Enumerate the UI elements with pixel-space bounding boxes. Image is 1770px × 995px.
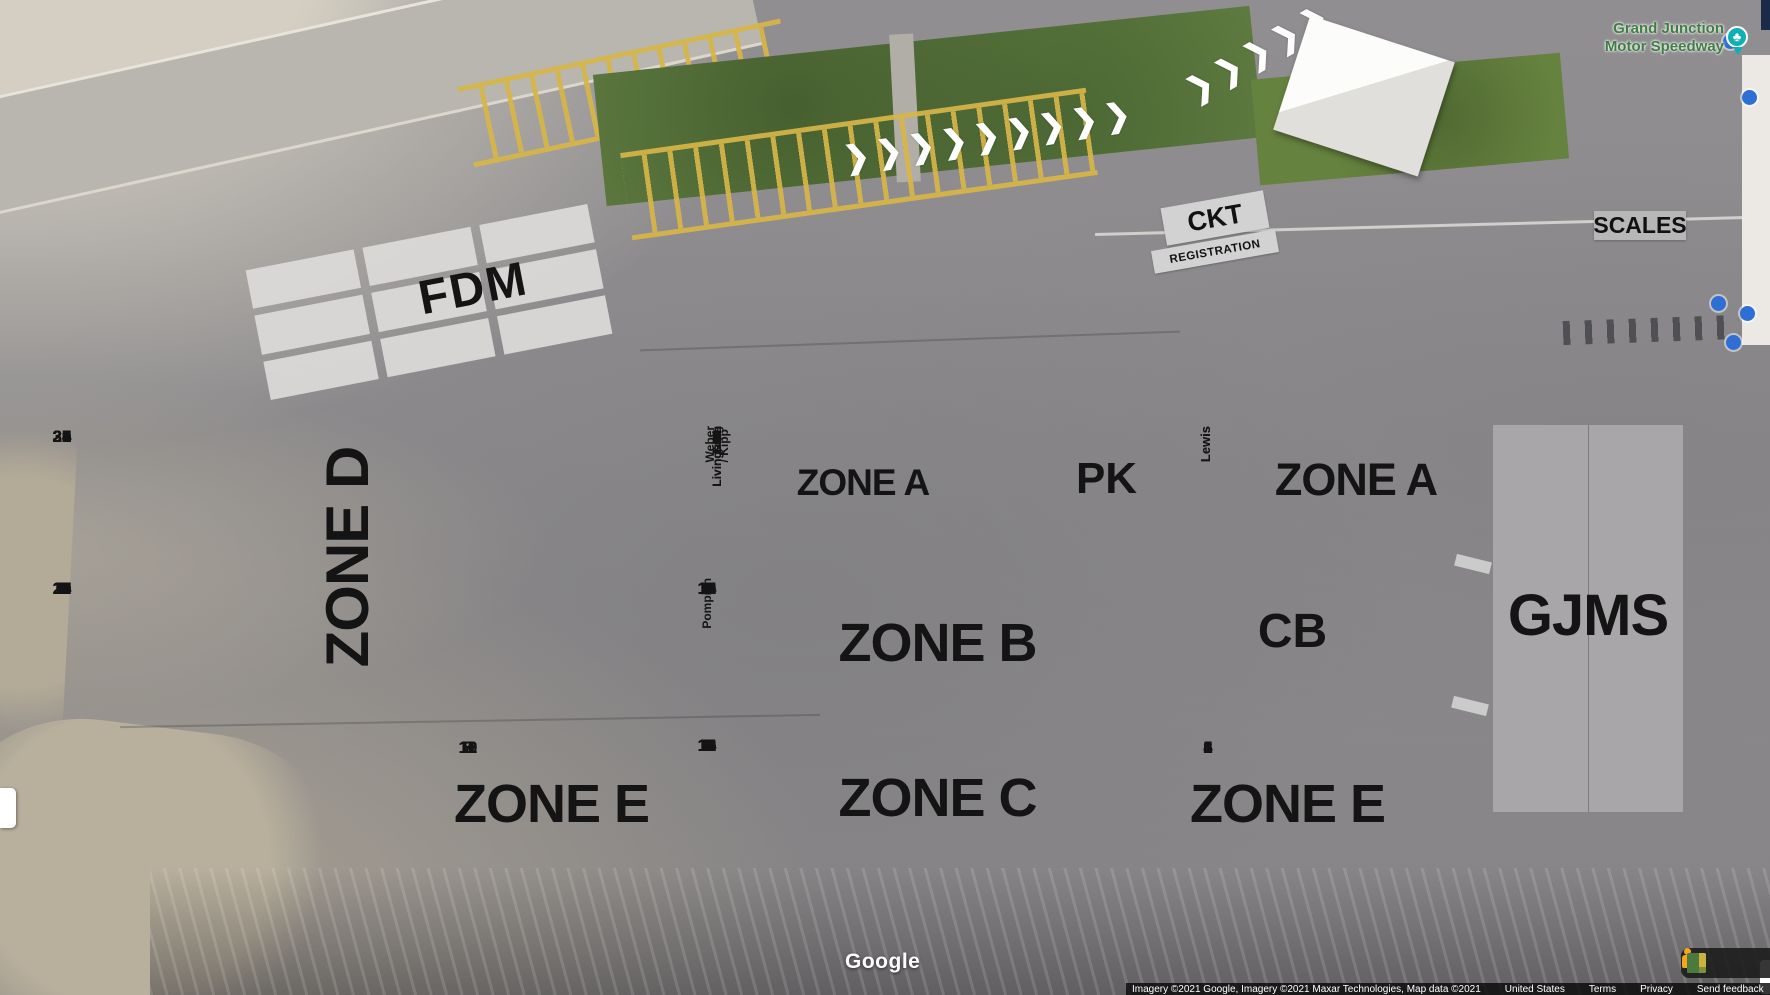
stall-number: 7 [463, 738, 472, 758]
stall-number: 1 [1203, 738, 1212, 758]
pk-label: PK [1048, 454, 1165, 505]
zone-a-right-label: ZONE A [1261, 454, 1451, 506]
umbrella-dot [1742, 90, 1757, 105]
zone-d-label: ZONE D [311, 422, 385, 692]
cb-block: CB [1208, 578, 1377, 687]
place-marker-icon[interactable]: ♣ [1726, 26, 1748, 48]
photo-thumbnail[interactable] [1687, 953, 1699, 973]
place-label[interactable]: Grand Junction Motor Speedway [1605, 20, 1724, 56]
zone-c-label: ZONE C [707, 767, 1168, 829]
stall-number: 1 [702, 736, 711, 756]
cb-label: CB [1208, 604, 1377, 659]
corner-element [1761, 0, 1770, 30]
scales-sign: SCALES [1594, 211, 1686, 240]
umbrella-dot [1740, 306, 1755, 321]
zone-a-right: LewisLewis ZONE A [1205, 424, 1453, 535]
zone-e-right-label: ZONE E [1190, 773, 1385, 835]
zone-e-left-label: ZONE E [454, 773, 649, 835]
pk-block: PK [1048, 424, 1165, 535]
terms-link[interactable]: Terms [1589, 984, 1616, 995]
stall-name: Lewis [1198, 424, 1213, 464]
gjms-building: GJMS [1493, 425, 1683, 812]
stall-number: 21 [53, 427, 72, 447]
place-label-line1: Grand Junction [1605, 20, 1724, 38]
gjms-label: GJMS [1493, 583, 1683, 650]
stall-number: 1 [57, 579, 66, 599]
speedway-pit-map: ❯❯❯❯❯❯❯❯❯ ❯❯❯❯❯ Grand Junction Motor Spe… [0, 0, 1770, 995]
imagery-credit: Imagery ©2021 Google, Imagery ©2021 Maxa… [1132, 984, 1481, 995]
attribution-bar: Imagery ©2021 Google, Imagery ©2021 Maxa… [1126, 983, 1770, 995]
partial-control[interactable] [0, 788, 16, 828]
place-label-line2: Motor Speedway [1605, 38, 1724, 56]
region-label: United States [1505, 984, 1565, 995]
umbrella-dot [1711, 296, 1726, 311]
privacy-link[interactable]: Privacy [1640, 984, 1673, 995]
zone-a-left: Weber / KippTires987654Livingston3Living… [717, 424, 1048, 535]
zone-c: 16151413121110987654321 ZONE C [707, 733, 1168, 842]
zone-e-left: 121110987 ZONE E [468, 735, 640, 842]
photo-strip [1681, 948, 1770, 978]
google-logo[interactable]: Google [845, 950, 920, 974]
feedback-link[interactable]: Send feedback [1697, 984, 1764, 995]
zone-a-left-label: ZONE A [775, 462, 951, 505]
zone-e-right: 654321 ZONE E [1208, 735, 1380, 842]
gravel-band [150, 868, 1770, 995]
stall-name: Krug [710, 424, 724, 456]
zone-b-label: ZONE B [707, 612, 1168, 674]
zone-b: 16151413121110987654321Pompian ZONE B [707, 576, 1168, 686]
